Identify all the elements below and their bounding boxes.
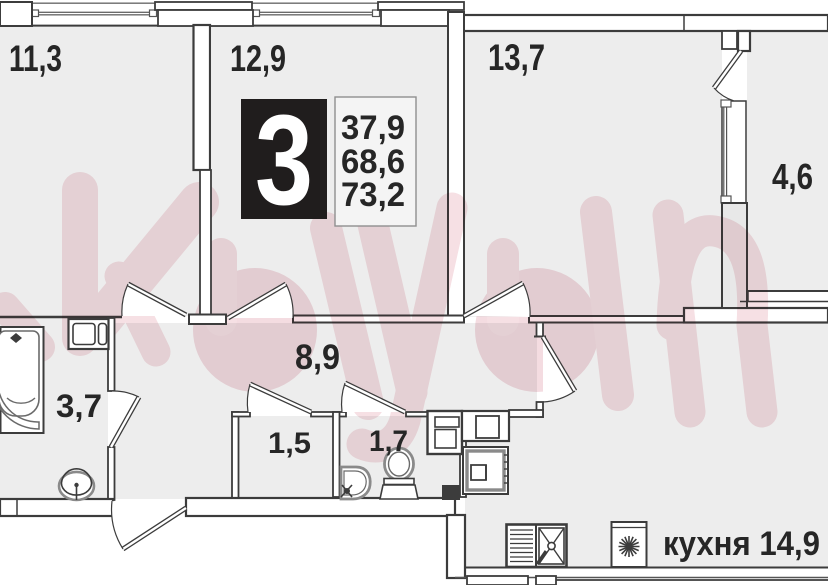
svg-text:кухня 14,9: кухня 14,9 [663,525,820,563]
svg-text:4,6: 4,6 [772,156,813,197]
svg-text:73,2: 73,2 [341,176,405,214]
svg-text:8,9: 8,9 [295,338,340,377]
svg-text:11,3: 11,3 [9,38,62,79]
svg-text:13,7: 13,7 [488,37,545,78]
svg-text:12,9: 12,9 [230,38,286,79]
svg-text:37,9: 37,9 [341,109,405,147]
svg-text:3: 3 [255,89,313,232]
svg-text:1,5: 1,5 [268,427,311,460]
svg-text:1,7: 1,7 [369,425,408,458]
svg-text:3,7: 3,7 [56,388,102,424]
